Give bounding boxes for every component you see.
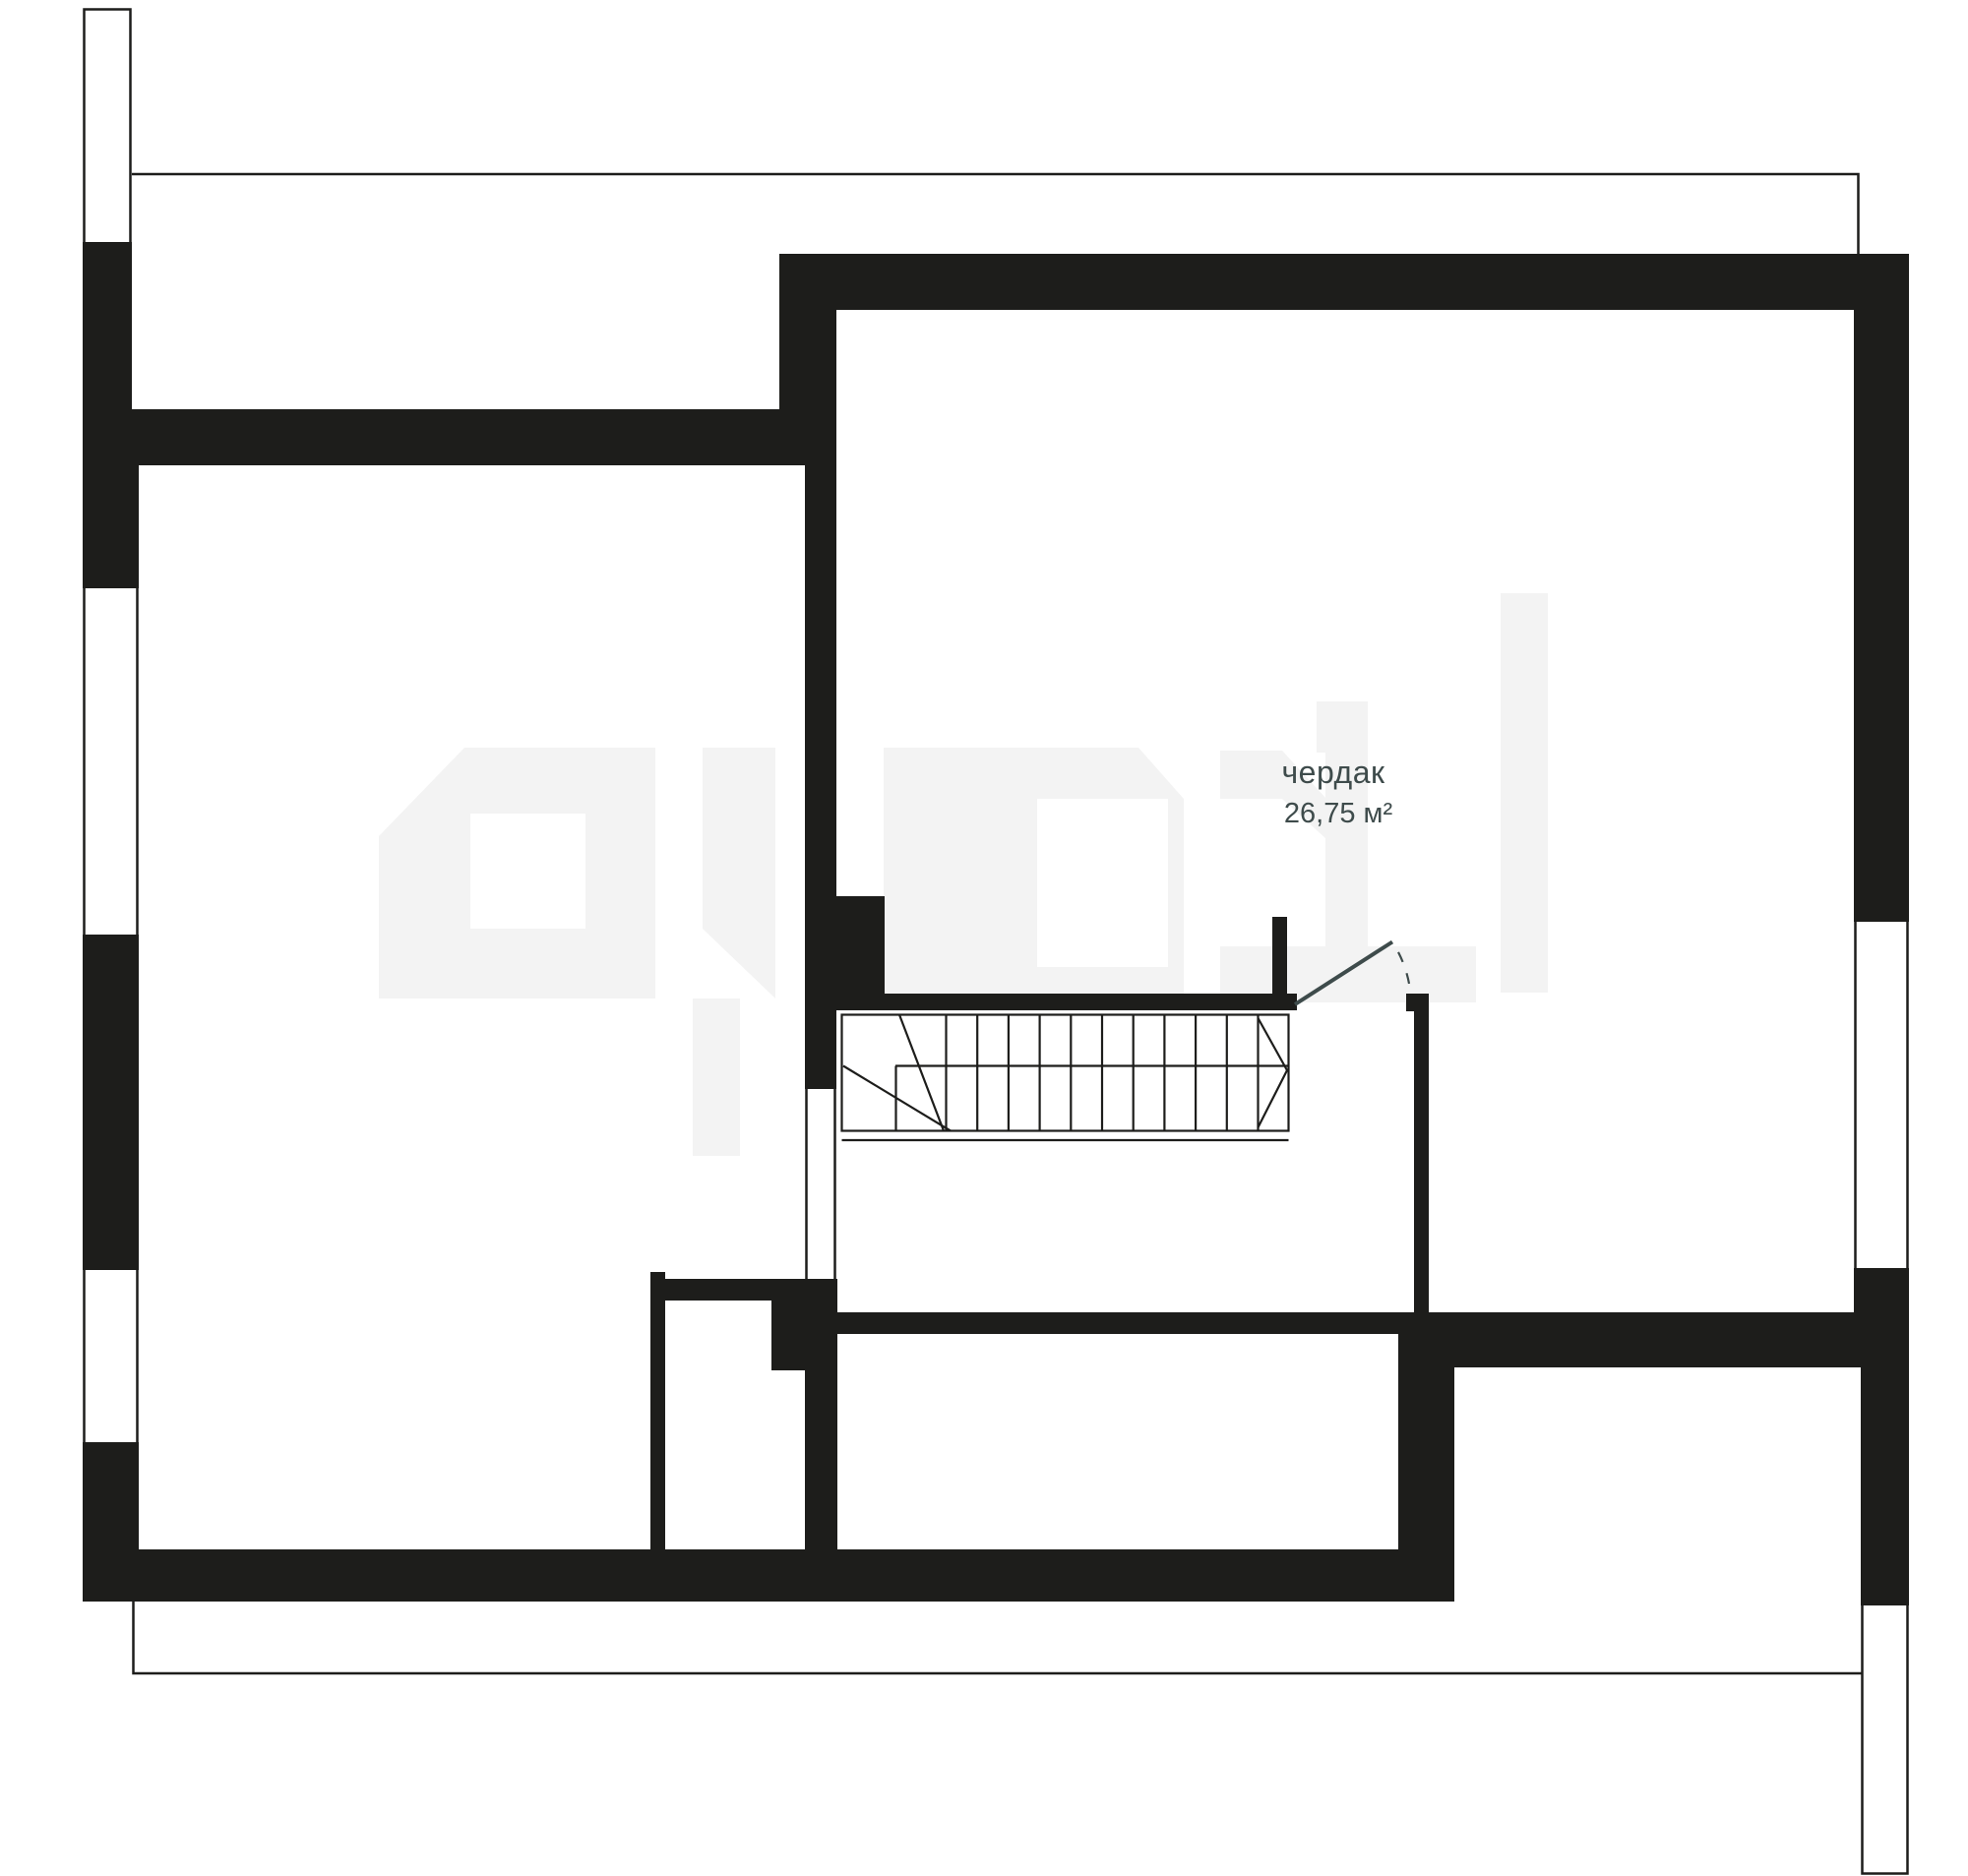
svg-text:26,75 м²: 26,75 м²: [1284, 798, 1393, 829]
svg-text:чердак: чердак: [1282, 755, 1386, 790]
